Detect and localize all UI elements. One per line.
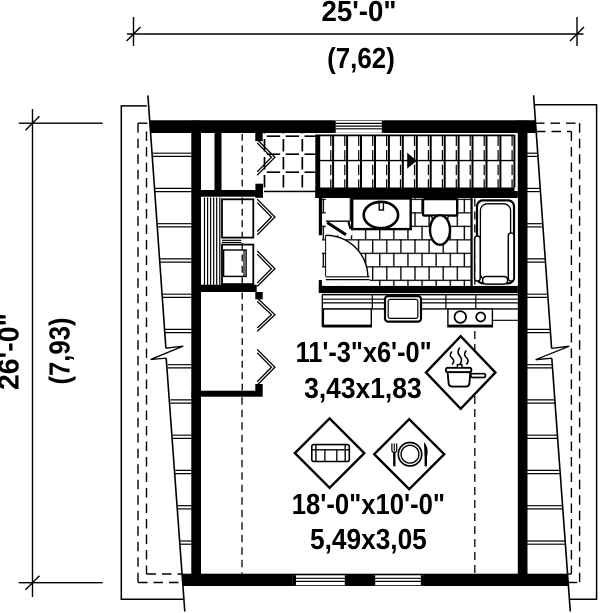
svg-text:11'-3"x6'-0": 11'-3"x6'-0" — [296, 337, 432, 369]
svg-text:5,49x3,05: 5,49x3,05 — [310, 524, 427, 556]
svg-text:26'-0": 26'-0" — [0, 313, 26, 390]
svg-text:(7,93): (7,93) — [45, 318, 77, 385]
svg-text:25'-0": 25'-0" — [322, 0, 397, 28]
svg-text:18'-0"x10'-0": 18'-0"x10'-0" — [292, 489, 445, 521]
svg-text:3,43x1,83: 3,43x1,83 — [304, 373, 422, 405]
svg-text:(7,62): (7,62) — [327, 43, 395, 75]
